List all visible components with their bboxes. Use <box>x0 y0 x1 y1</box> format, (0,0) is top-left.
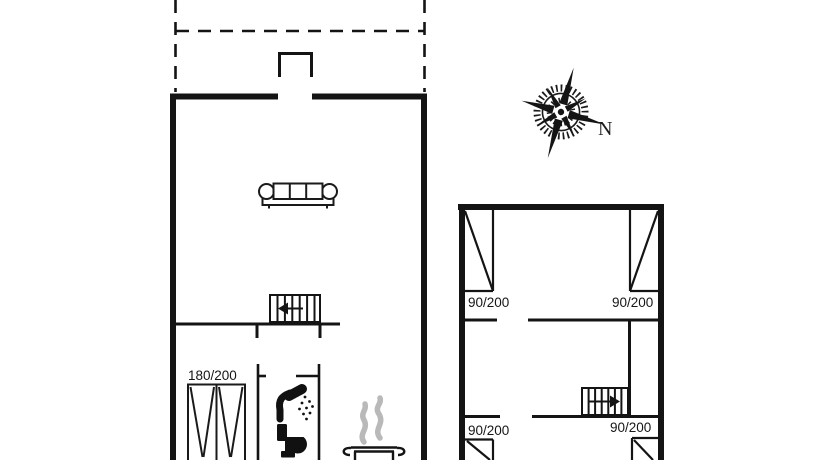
right-interior-walls <box>463 320 663 417</box>
entrance-porch-icon <box>280 54 312 78</box>
window-icon-top-right <box>630 210 658 291</box>
shower-icon <box>279 389 313 420</box>
staircase-right-icon <box>582 388 628 415</box>
steam-icon <box>362 398 381 442</box>
wardrobe-dimension-label: 180/200 <box>188 369 237 383</box>
wardrobe-icon <box>188 385 245 460</box>
sofa-icon <box>259 184 337 209</box>
window-icon-top-left <box>465 210 493 291</box>
window-icon-bottom-left <box>465 440 493 460</box>
left-building-walls <box>170 94 427 460</box>
toilet-icon <box>277 424 307 458</box>
north-label: N <box>598 119 612 139</box>
window-dimension-label-top-left: 90/200 <box>468 296 509 310</box>
window-dimension-label-bottom-right: 90/200 <box>610 421 651 435</box>
left-interior-wall <box>176 324 340 338</box>
window-icon-bottom-right <box>632 438 658 460</box>
floor-plan-canvas: 180/200 90/200 90/200 90/200 90/200 N <box>0 0 834 460</box>
terrace-dashed-outline <box>176 0 425 92</box>
staircase-left-icon <box>270 295 320 322</box>
floor-plan-drawing <box>0 0 834 460</box>
window-dimension-label-top-right: 90/200 <box>612 296 653 310</box>
compass-rose-icon <box>508 56 618 170</box>
window-dimension-label-bottom-left: 90/200 <box>468 424 509 438</box>
cooking-pot-icon <box>344 398 405 460</box>
